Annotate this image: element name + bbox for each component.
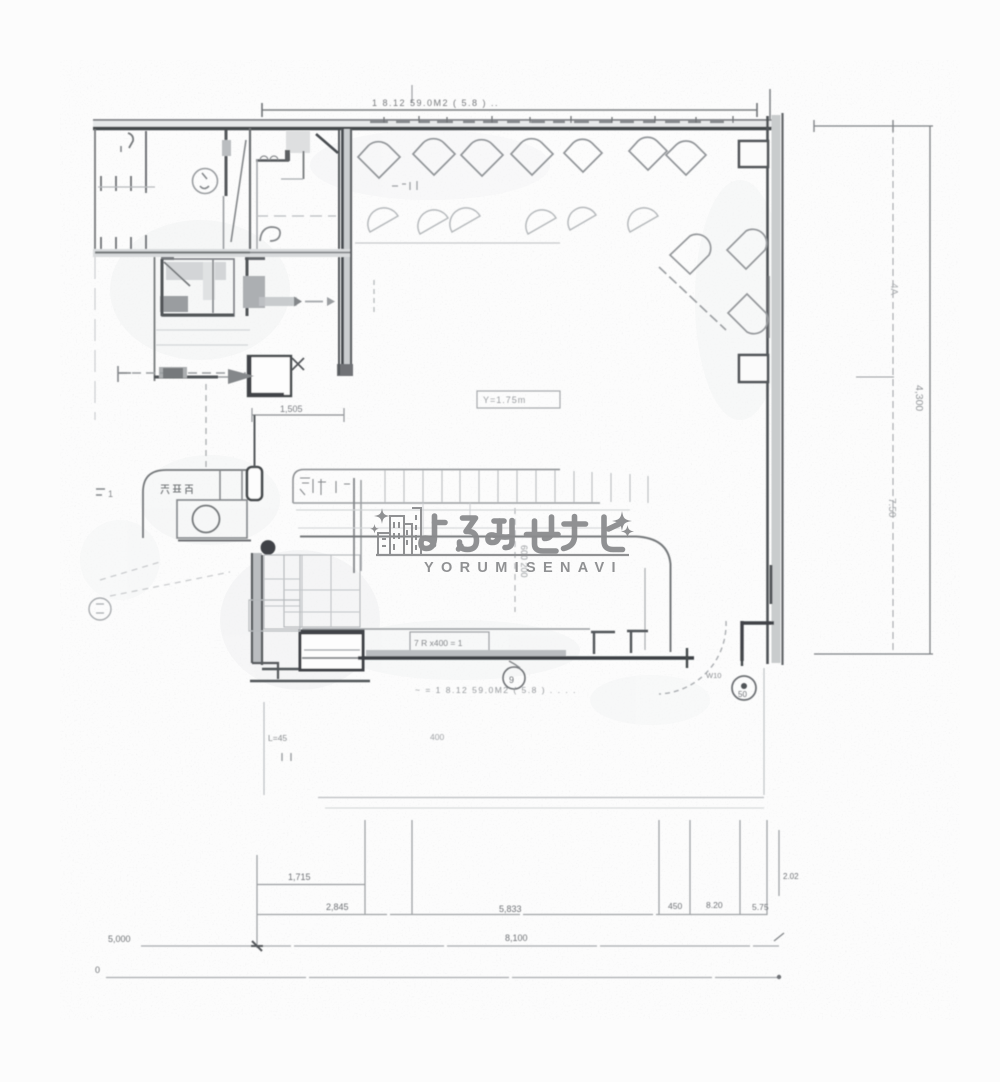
svg-text:450: 450	[668, 901, 682, 911]
svg-text:7.50: 7.50	[886, 498, 897, 518]
svg-text:1 8.12 59.0M2 ( 5.8 ) ..: 1 8.12 59.0M2 ( 5.8 ) ..	[372, 98, 499, 108]
svg-text:7 R x400 = 1: 7 R x400 = 1	[414, 638, 463, 648]
svg-text:5.75: 5.75	[752, 902, 769, 912]
svg-text:4,300: 4,300	[913, 385, 925, 411]
svg-text:YORUMISENAVI: YORUMISENAVI	[424, 560, 622, 576]
svg-text:8,100: 8,100	[505, 933, 528, 943]
svg-text:5,833: 5,833	[499, 904, 522, 914]
svg-text:4A: 4A	[888, 283, 899, 296]
svg-text:1,505: 1,505	[280, 404, 303, 414]
svg-text:Y=1.75m: Y=1.75m	[483, 395, 526, 405]
svg-text:0: 0	[95, 965, 100, 975]
svg-text:2.02: 2.02	[783, 872, 799, 881]
svg-text:L=45: L=45	[268, 733, 287, 743]
svg-text:2,845: 2,845	[326, 902, 349, 912]
svg-text:W10: W10	[706, 671, 721, 680]
svg-text:400: 400	[430, 732, 444, 742]
svg-text:~ = 1 8.12 59.0M2 ( 5.8 ) .: ~ = 1 8.12 59.0M2 ( 5.8 ) . . . .	[415, 685, 577, 695]
svg-text:50: 50	[738, 690, 747, 699]
svg-text:1: 1	[108, 489, 113, 499]
svg-text:8.20: 8.20	[706, 900, 723, 910]
svg-text:9: 9	[509, 675, 514, 685]
svg-text:5,000: 5,000	[108, 934, 131, 944]
svg-text:1,715: 1,715	[288, 872, 311, 882]
